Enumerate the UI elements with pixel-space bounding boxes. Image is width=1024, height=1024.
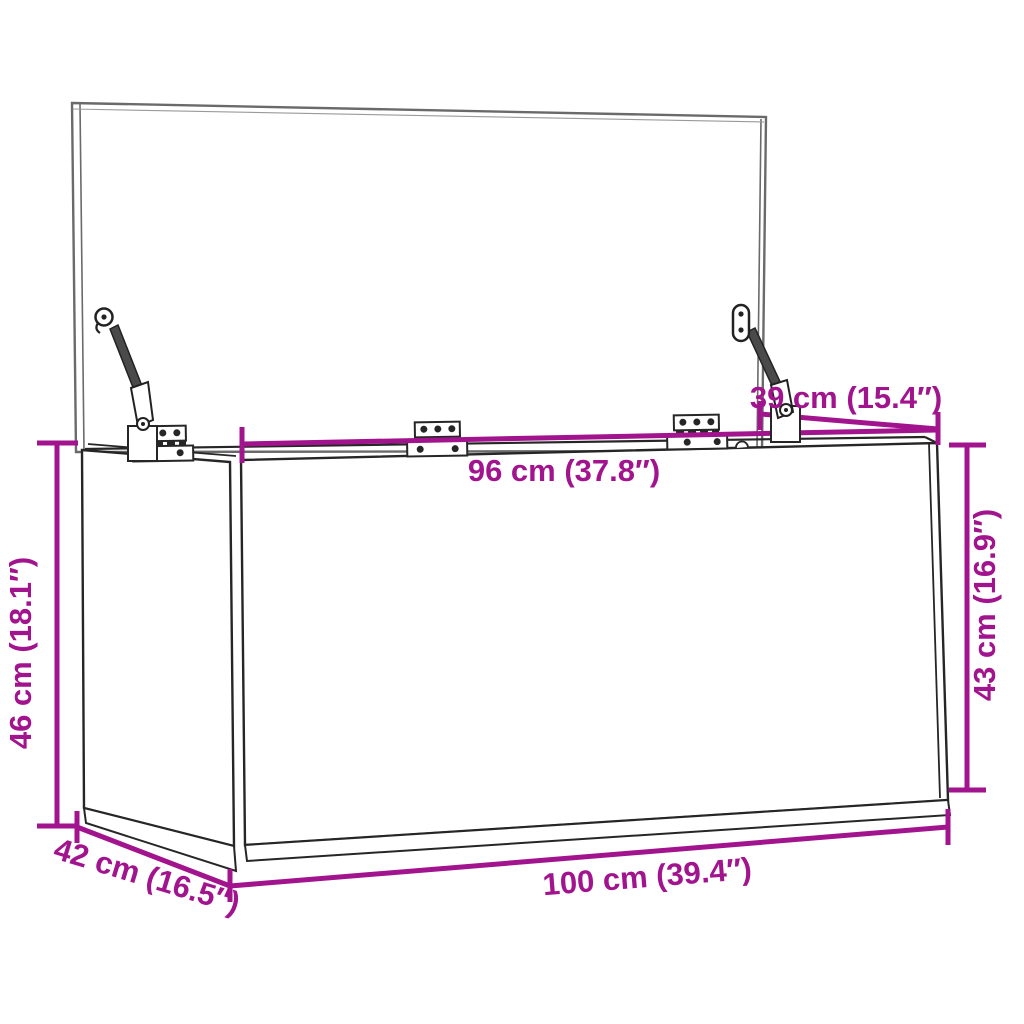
- stay-mount-block: [128, 426, 157, 461]
- lid: [72, 103, 766, 452]
- screw-icon: [680, 419, 686, 425]
- screw-icon: [714, 439, 720, 445]
- stay-bracket: [733, 305, 749, 341]
- rim-notch: [736, 441, 748, 448]
- box-front-panel: [241, 443, 948, 845]
- stay-pivot-pin: [141, 422, 145, 426]
- screw-icon: [449, 426, 455, 432]
- screw-icon: [421, 426, 427, 432]
- box-body: [82, 437, 950, 871]
- screw-icon: [452, 446, 458, 452]
- screw-icon: [160, 430, 166, 436]
- screw-icon: [174, 430, 180, 436]
- screw-icon: [684, 439, 690, 445]
- stay-eyelet-pin: [101, 314, 106, 319]
- screw-icon: [417, 446, 423, 452]
- label-overall-height: 46 cm (18.1″): [3, 557, 38, 749]
- lid-panel: [72, 103, 766, 452]
- screw-icon: [738, 311, 743, 316]
- screw-icon: [708, 419, 714, 425]
- label-inner-width: 96 cm (37.8″): [468, 453, 660, 488]
- diagram-canvas: 46 cm (18.1″) 43 cm (16.9″) 39 cm (15.4″…: [0, 0, 1024, 1024]
- box-side-panel: [82, 450, 234, 846]
- screw-icon: [435, 426, 441, 432]
- dimension-overall-height: [37, 443, 78, 826]
- screw-icon: [738, 327, 743, 332]
- label-lid-depth: 39 cm (15.4″): [750, 380, 942, 415]
- label-front-height: 43 cm (16.9″): [967, 509, 1002, 701]
- dimension-diagram: 46 cm (18.1″) 43 cm (16.9″) 39 cm (15.4″…: [0, 0, 1024, 1024]
- screw-icon: [694, 419, 700, 425]
- screw-icon: [177, 450, 183, 456]
